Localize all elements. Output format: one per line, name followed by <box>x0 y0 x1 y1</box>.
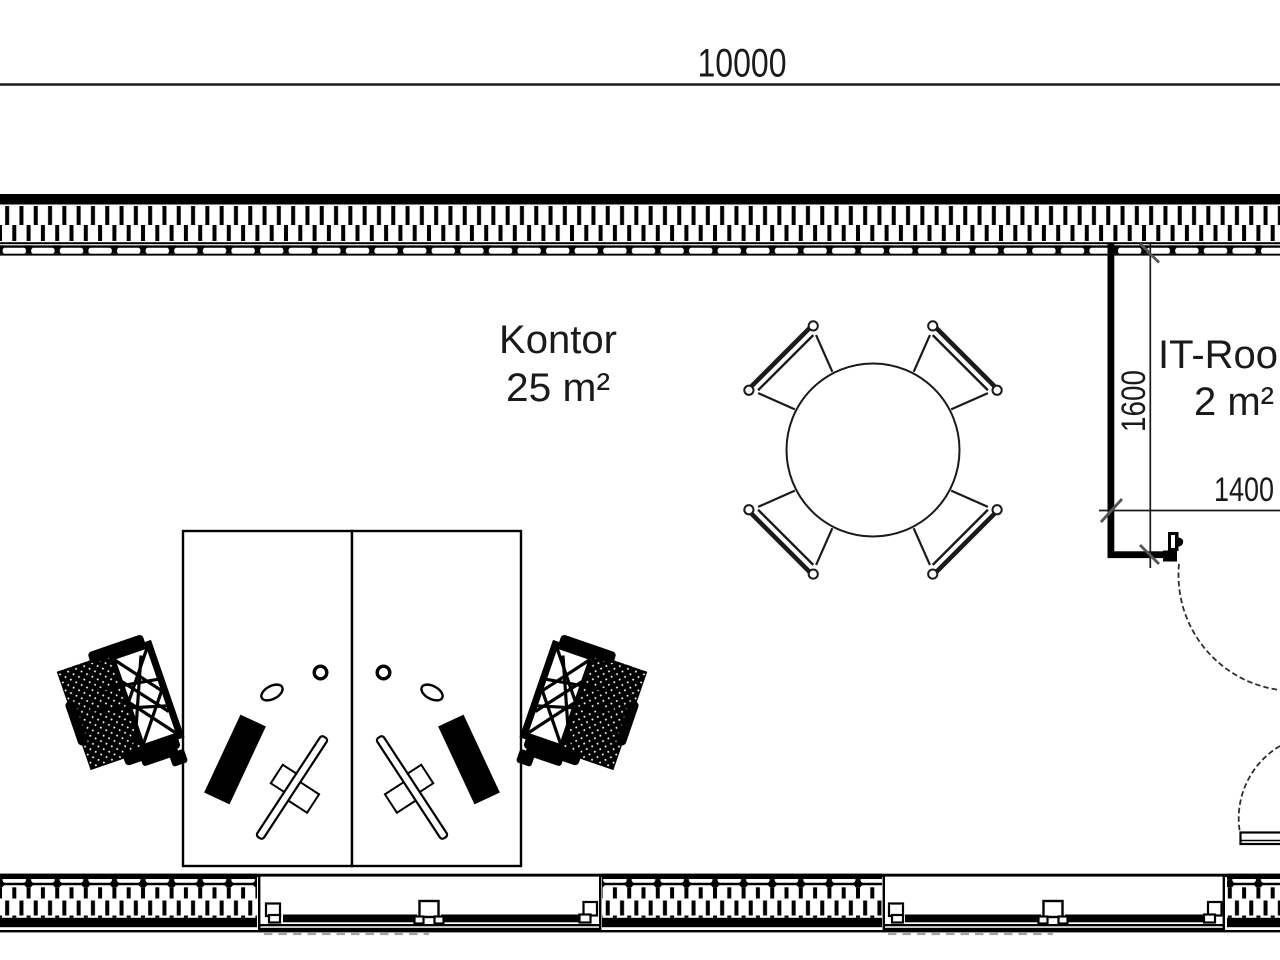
svg-text:IT-Room: IT-Room <box>1158 333 1280 377</box>
svg-text:10000: 10000 <box>698 42 787 86</box>
svg-text:25 m²: 25 m² <box>506 366 610 410</box>
svg-text:2 m²: 2 m² <box>1194 380 1274 424</box>
svg-text:1600: 1600 <box>1115 370 1153 432</box>
svg-text:1400: 1400 <box>1214 471 1274 509</box>
svg-text:Kontor: Kontor <box>499 318 617 362</box>
